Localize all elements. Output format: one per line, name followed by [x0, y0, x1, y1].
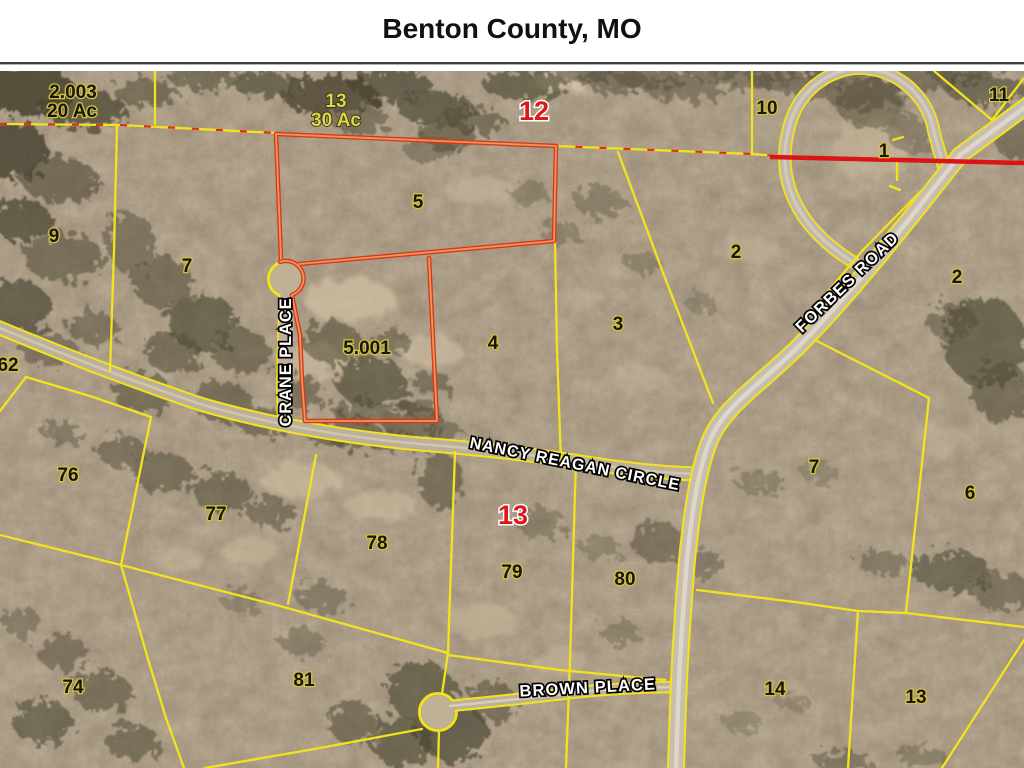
svg-text:5: 5 — [413, 192, 424, 213]
svg-text:6: 6 — [965, 483, 976, 504]
svg-text:80: 80 — [614, 569, 635, 590]
svg-text:5.001: 5.001 — [343, 338, 391, 359]
svg-text:13: 13 — [905, 687, 926, 708]
svg-text:2: 2 — [952, 267, 963, 288]
svg-text:12: 12 — [519, 96, 549, 126]
svg-text:13: 13 — [325, 91, 346, 112]
svg-text:2.003: 2.003 — [49, 82, 97, 103]
svg-text:74: 74 — [62, 677, 84, 698]
svg-text:62: 62 — [0, 355, 19, 376]
svg-text:11: 11 — [989, 85, 1010, 106]
svg-text:2: 2 — [731, 242, 742, 263]
svg-text:7: 7 — [809, 457, 820, 478]
svg-text:7: 7 — [182, 256, 193, 277]
svg-text:79: 79 — [501, 562, 522, 583]
svg-text:CRANE PLACE: CRANE PLACE — [277, 297, 295, 426]
svg-text:14: 14 — [764, 679, 786, 700]
svg-text:81: 81 — [293, 670, 315, 691]
svg-text:Benton County, MO: Benton County, MO — [382, 13, 641, 44]
svg-text:1: 1 — [879, 141, 890, 162]
svg-text:3: 3 — [613, 314, 624, 335]
svg-text:76: 76 — [57, 465, 78, 486]
svg-text:4: 4 — [488, 333, 499, 354]
svg-text:9: 9 — [49, 226, 60, 247]
svg-text:10: 10 — [756, 98, 777, 119]
svg-text:30 Ac: 30 Ac — [311, 110, 361, 131]
svg-text:13: 13 — [498, 500, 528, 530]
svg-text:77: 77 — [205, 504, 226, 525]
svg-text:78: 78 — [366, 533, 387, 554]
svg-text:20 Ac: 20 Ac — [47, 101, 97, 122]
